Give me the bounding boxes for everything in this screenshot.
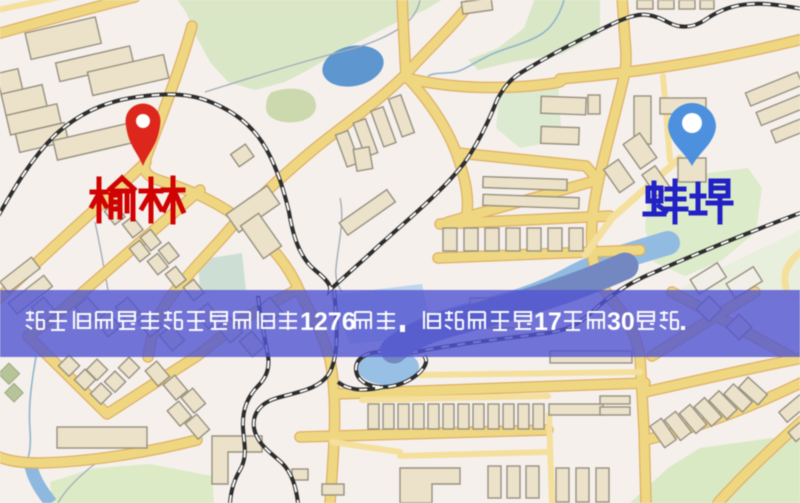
svg-text:1276: 1276 — [300, 308, 356, 336]
svg-text:30: 30 — [607, 308, 635, 336]
svg-text:17: 17 — [534, 308, 562, 336]
